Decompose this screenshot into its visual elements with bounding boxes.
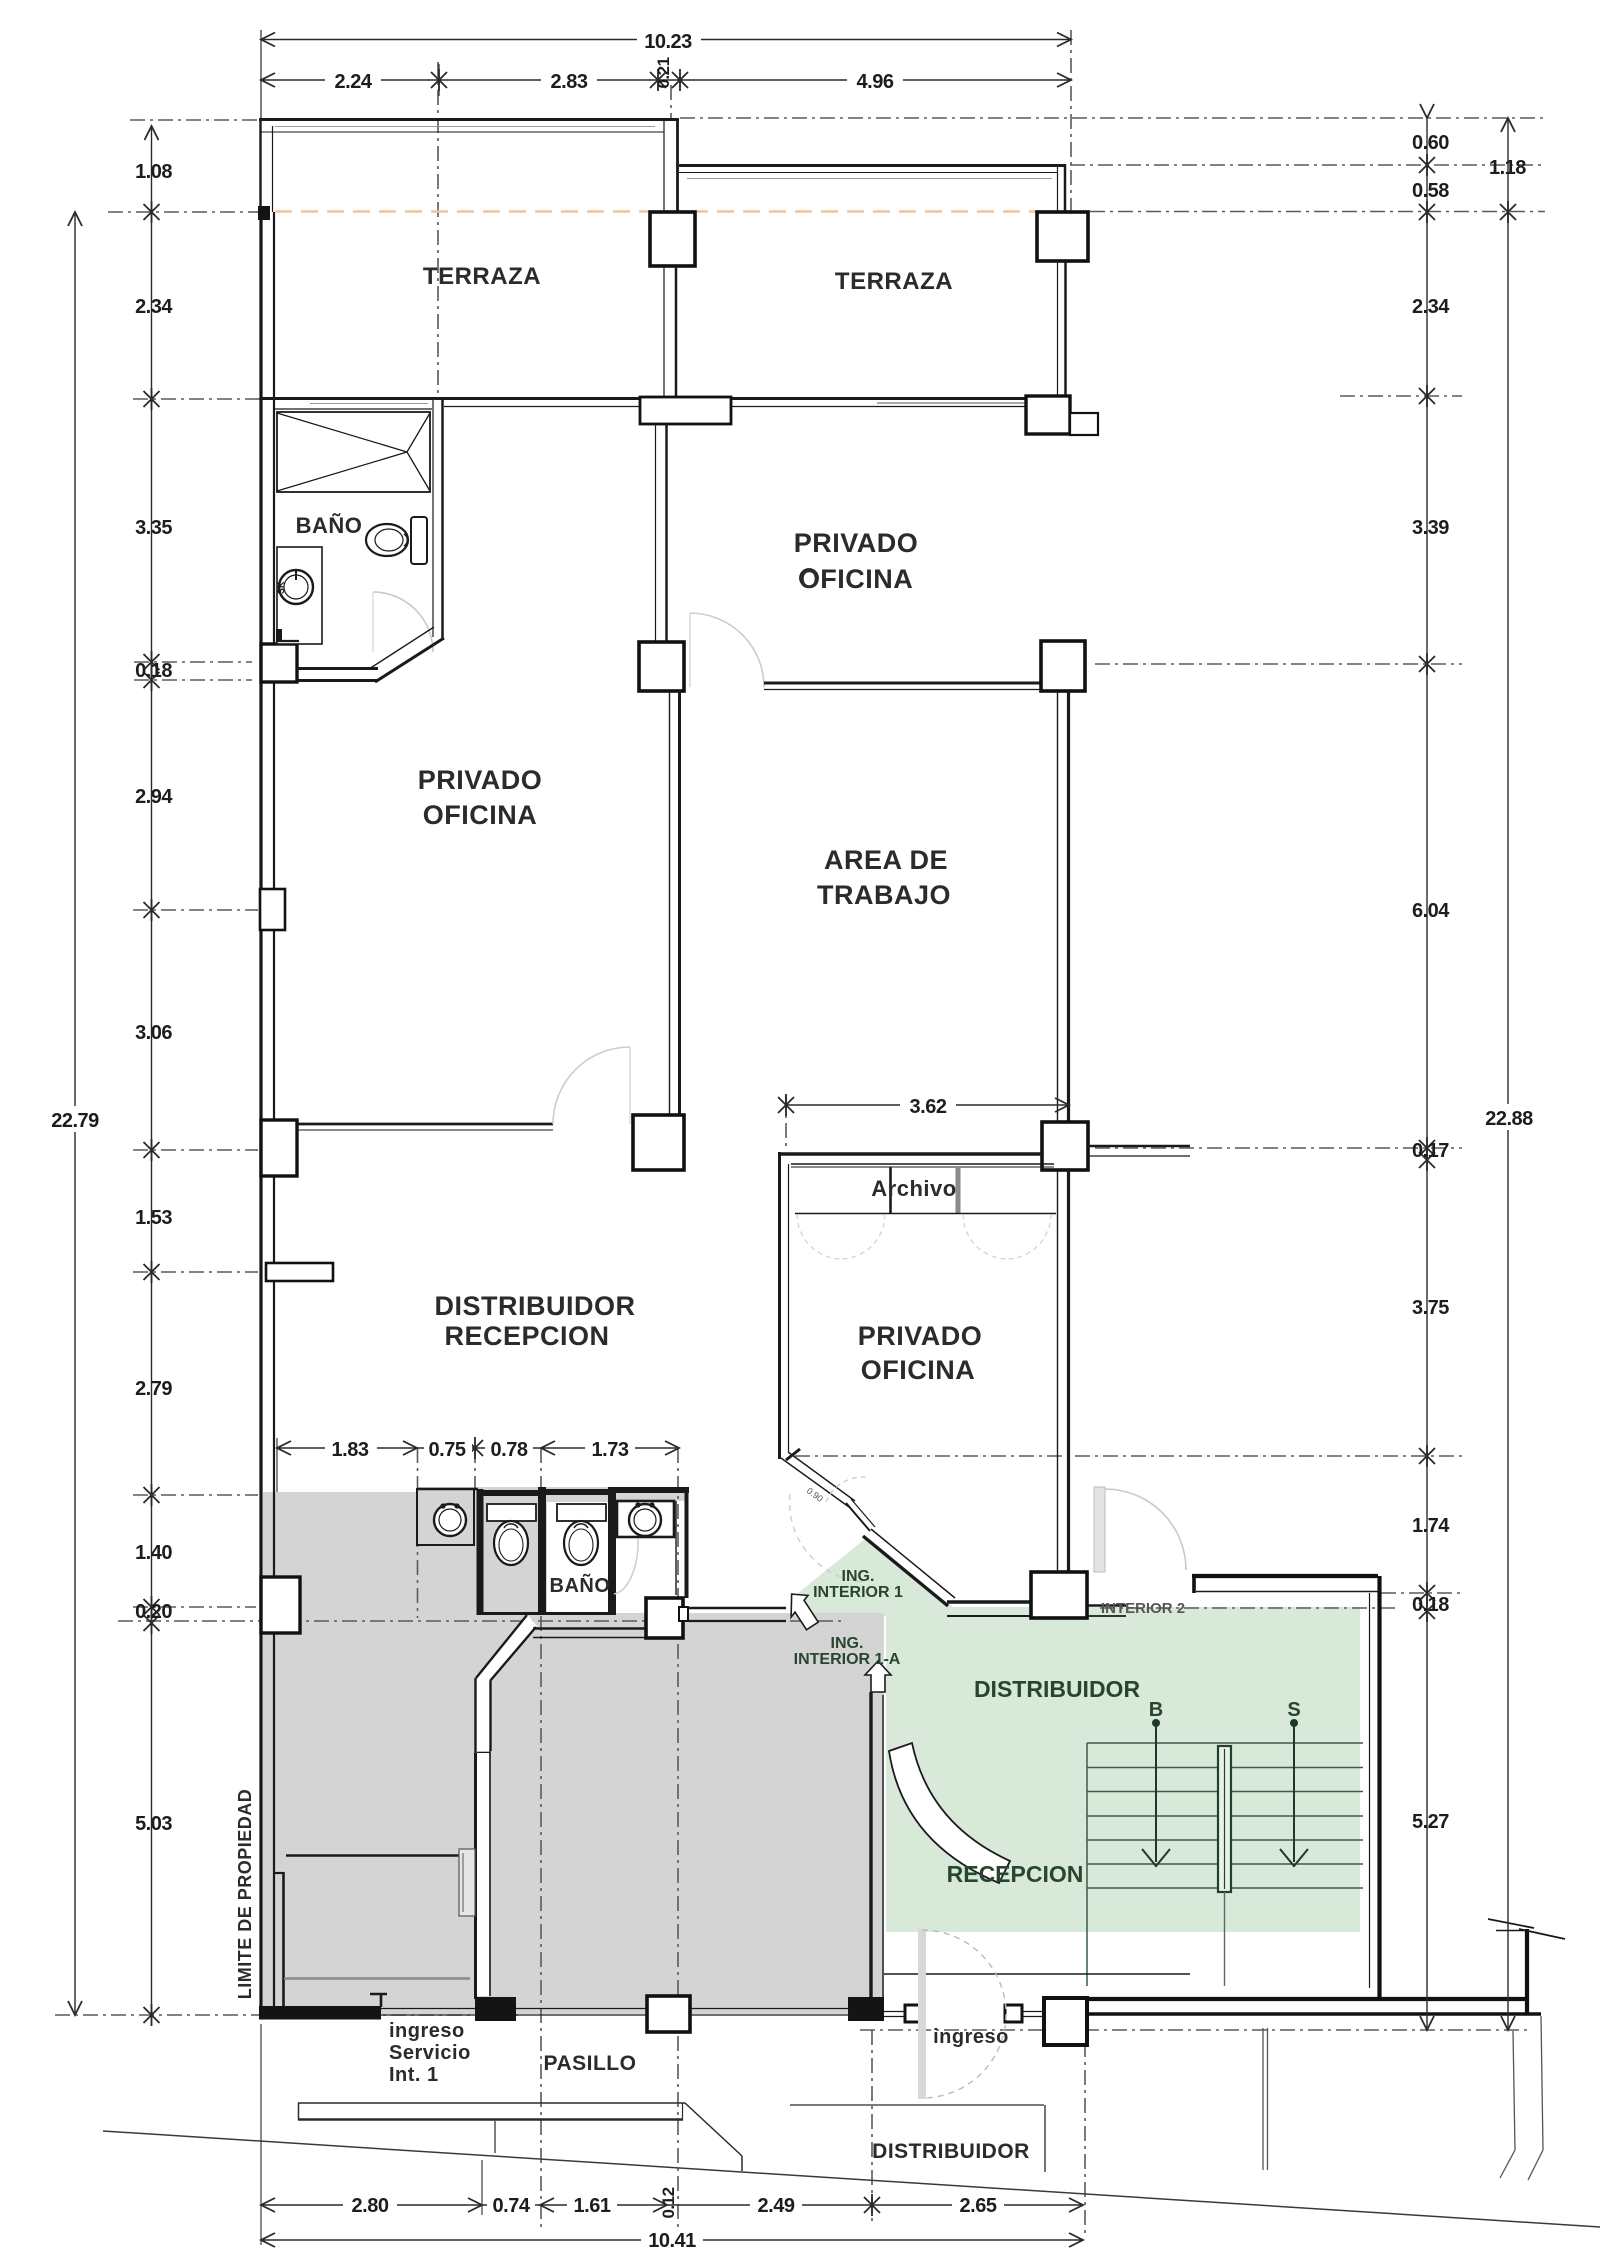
svg-text:LIMITE DE PROPIEDAD: LIMITE DE PROPIEDAD <box>235 1789 255 2000</box>
svg-text:1.18: 1.18 <box>1489 157 1526 179</box>
svg-text:2.94: 2.94 <box>135 786 173 808</box>
svg-text:TERRAZA: TERRAZA <box>835 268 953 295</box>
svg-text:INTERIOR 2: INTERIOR 2 <box>1101 1600 1185 1617</box>
svg-text:OFICINA: OFICINA <box>799 564 914 594</box>
svg-text:0.60: 0.60 <box>1412 132 1449 154</box>
svg-text:1.40: 1.40 <box>135 1542 172 1564</box>
svg-text:RECEPCION: RECEPCION <box>444 1321 609 1351</box>
svg-text:0.74: 0.74 <box>493 2195 531 2217</box>
svg-text:3.35: 3.35 <box>135 517 172 539</box>
svg-text:2.34: 2.34 <box>135 296 173 318</box>
svg-text:1.53: 1.53 <box>135 1207 172 1229</box>
svg-text:0.12: 0.12 <box>659 2187 678 2218</box>
svg-text:INTERIOR 1: INTERIOR 1 <box>813 1584 903 1601</box>
svg-text:3.62: 3.62 <box>910 1096 947 1118</box>
svg-text:3.75: 3.75 <box>1412 1297 1449 1319</box>
svg-text:ING.: ING. <box>842 1568 875 1585</box>
svg-text:4.96: 4.96 <box>857 71 894 93</box>
svg-text:DISTRIBUIDOR: DISTRIBUIDOR <box>872 2140 1030 2163</box>
svg-text:0.20: 0.20 <box>135 1601 172 1623</box>
svg-text:AREA DE: AREA DE <box>824 845 948 875</box>
svg-text:Servicio: Servicio <box>389 2042 471 2064</box>
svg-text:PRIVADO: PRIVADO <box>418 765 543 795</box>
svg-text:SK: SK <box>276 581 286 594</box>
svg-text:OFICINA: OFICINA <box>423 800 538 830</box>
svg-text:BAÑO: BAÑO <box>296 513 363 538</box>
svg-text:1.61: 1.61 <box>574 2195 611 2217</box>
svg-text:22.88: 22.88 <box>1485 1108 1533 1130</box>
svg-text:0.58: 0.58 <box>1412 180 1449 202</box>
svg-text:2.79: 2.79 <box>135 1378 172 1400</box>
svg-text:6.04: 6.04 <box>1412 900 1450 922</box>
svg-text:ingreso: ingreso <box>933 2026 1009 2048</box>
svg-text:ING.: ING. <box>831 1635 864 1652</box>
svg-text:0.21: 0.21 <box>654 57 673 88</box>
svg-text:B: B <box>1149 1699 1163 1721</box>
svg-text:TERRAZA: TERRAZA <box>423 263 541 290</box>
svg-text:DISTRIBUIDOR: DISTRIBUIDOR <box>974 1676 1141 1702</box>
svg-text:2.24: 2.24 <box>335 71 373 93</box>
svg-text:10.41: 10.41 <box>648 2230 696 2252</box>
svg-text:INTERIOR 1-A: INTERIOR 1-A <box>794 1651 901 1668</box>
svg-text:2.49: 2.49 <box>758 2195 795 2217</box>
svg-text:3.39: 3.39 <box>1412 517 1449 539</box>
svg-text:5.03: 5.03 <box>135 1813 172 1835</box>
svg-text:PRIVADO: PRIVADO <box>794 528 919 558</box>
svg-text:ingreso: ingreso <box>389 2020 465 2042</box>
svg-text:TRABAJO: TRABAJO <box>817 880 951 910</box>
svg-text:2.34: 2.34 <box>1412 296 1450 318</box>
svg-text:1.08: 1.08 <box>135 161 172 183</box>
svg-text:2.83: 2.83 <box>551 71 588 93</box>
svg-text:Int. 1: Int. 1 <box>389 2064 439 2086</box>
svg-text:0.18: 0.18 <box>1412 1594 1449 1616</box>
svg-text:S: S <box>1287 1699 1300 1721</box>
svg-text:5.27: 5.27 <box>1412 1811 1449 1833</box>
svg-text:1.83: 1.83 <box>332 1439 369 1461</box>
svg-text:0.18: 0.18 <box>135 660 172 682</box>
svg-text:3.06: 3.06 <box>135 1022 172 1044</box>
svg-text:2.65: 2.65 <box>960 2195 997 2217</box>
svg-text:2.80: 2.80 <box>352 2195 389 2217</box>
svg-text:0.17: 0.17 <box>1412 1140 1449 1162</box>
svg-text:10.23: 10.23 <box>644 31 692 53</box>
svg-text:BAÑO: BAÑO <box>550 1574 611 1597</box>
svg-text:PASILLO: PASILLO <box>544 2052 637 2075</box>
svg-text:PRIVADO: PRIVADO <box>858 1321 983 1351</box>
svg-text:0.78: 0.78 <box>491 1439 528 1461</box>
svg-text:DISTRIBUIDOR: DISTRIBUIDOR <box>435 1291 636 1321</box>
svg-text:1.73: 1.73 <box>592 1439 629 1461</box>
svg-text:Archivo: Archivo <box>871 1176 956 1201</box>
svg-text:22.79: 22.79 <box>51 1110 99 1132</box>
svg-text:RECEPCION: RECEPCION <box>947 1861 1084 1887</box>
svg-text:1.74: 1.74 <box>1412 1515 1450 1537</box>
svg-text:0.75: 0.75 <box>429 1439 466 1461</box>
svg-text:OFICINA: OFICINA <box>861 1355 976 1385</box>
